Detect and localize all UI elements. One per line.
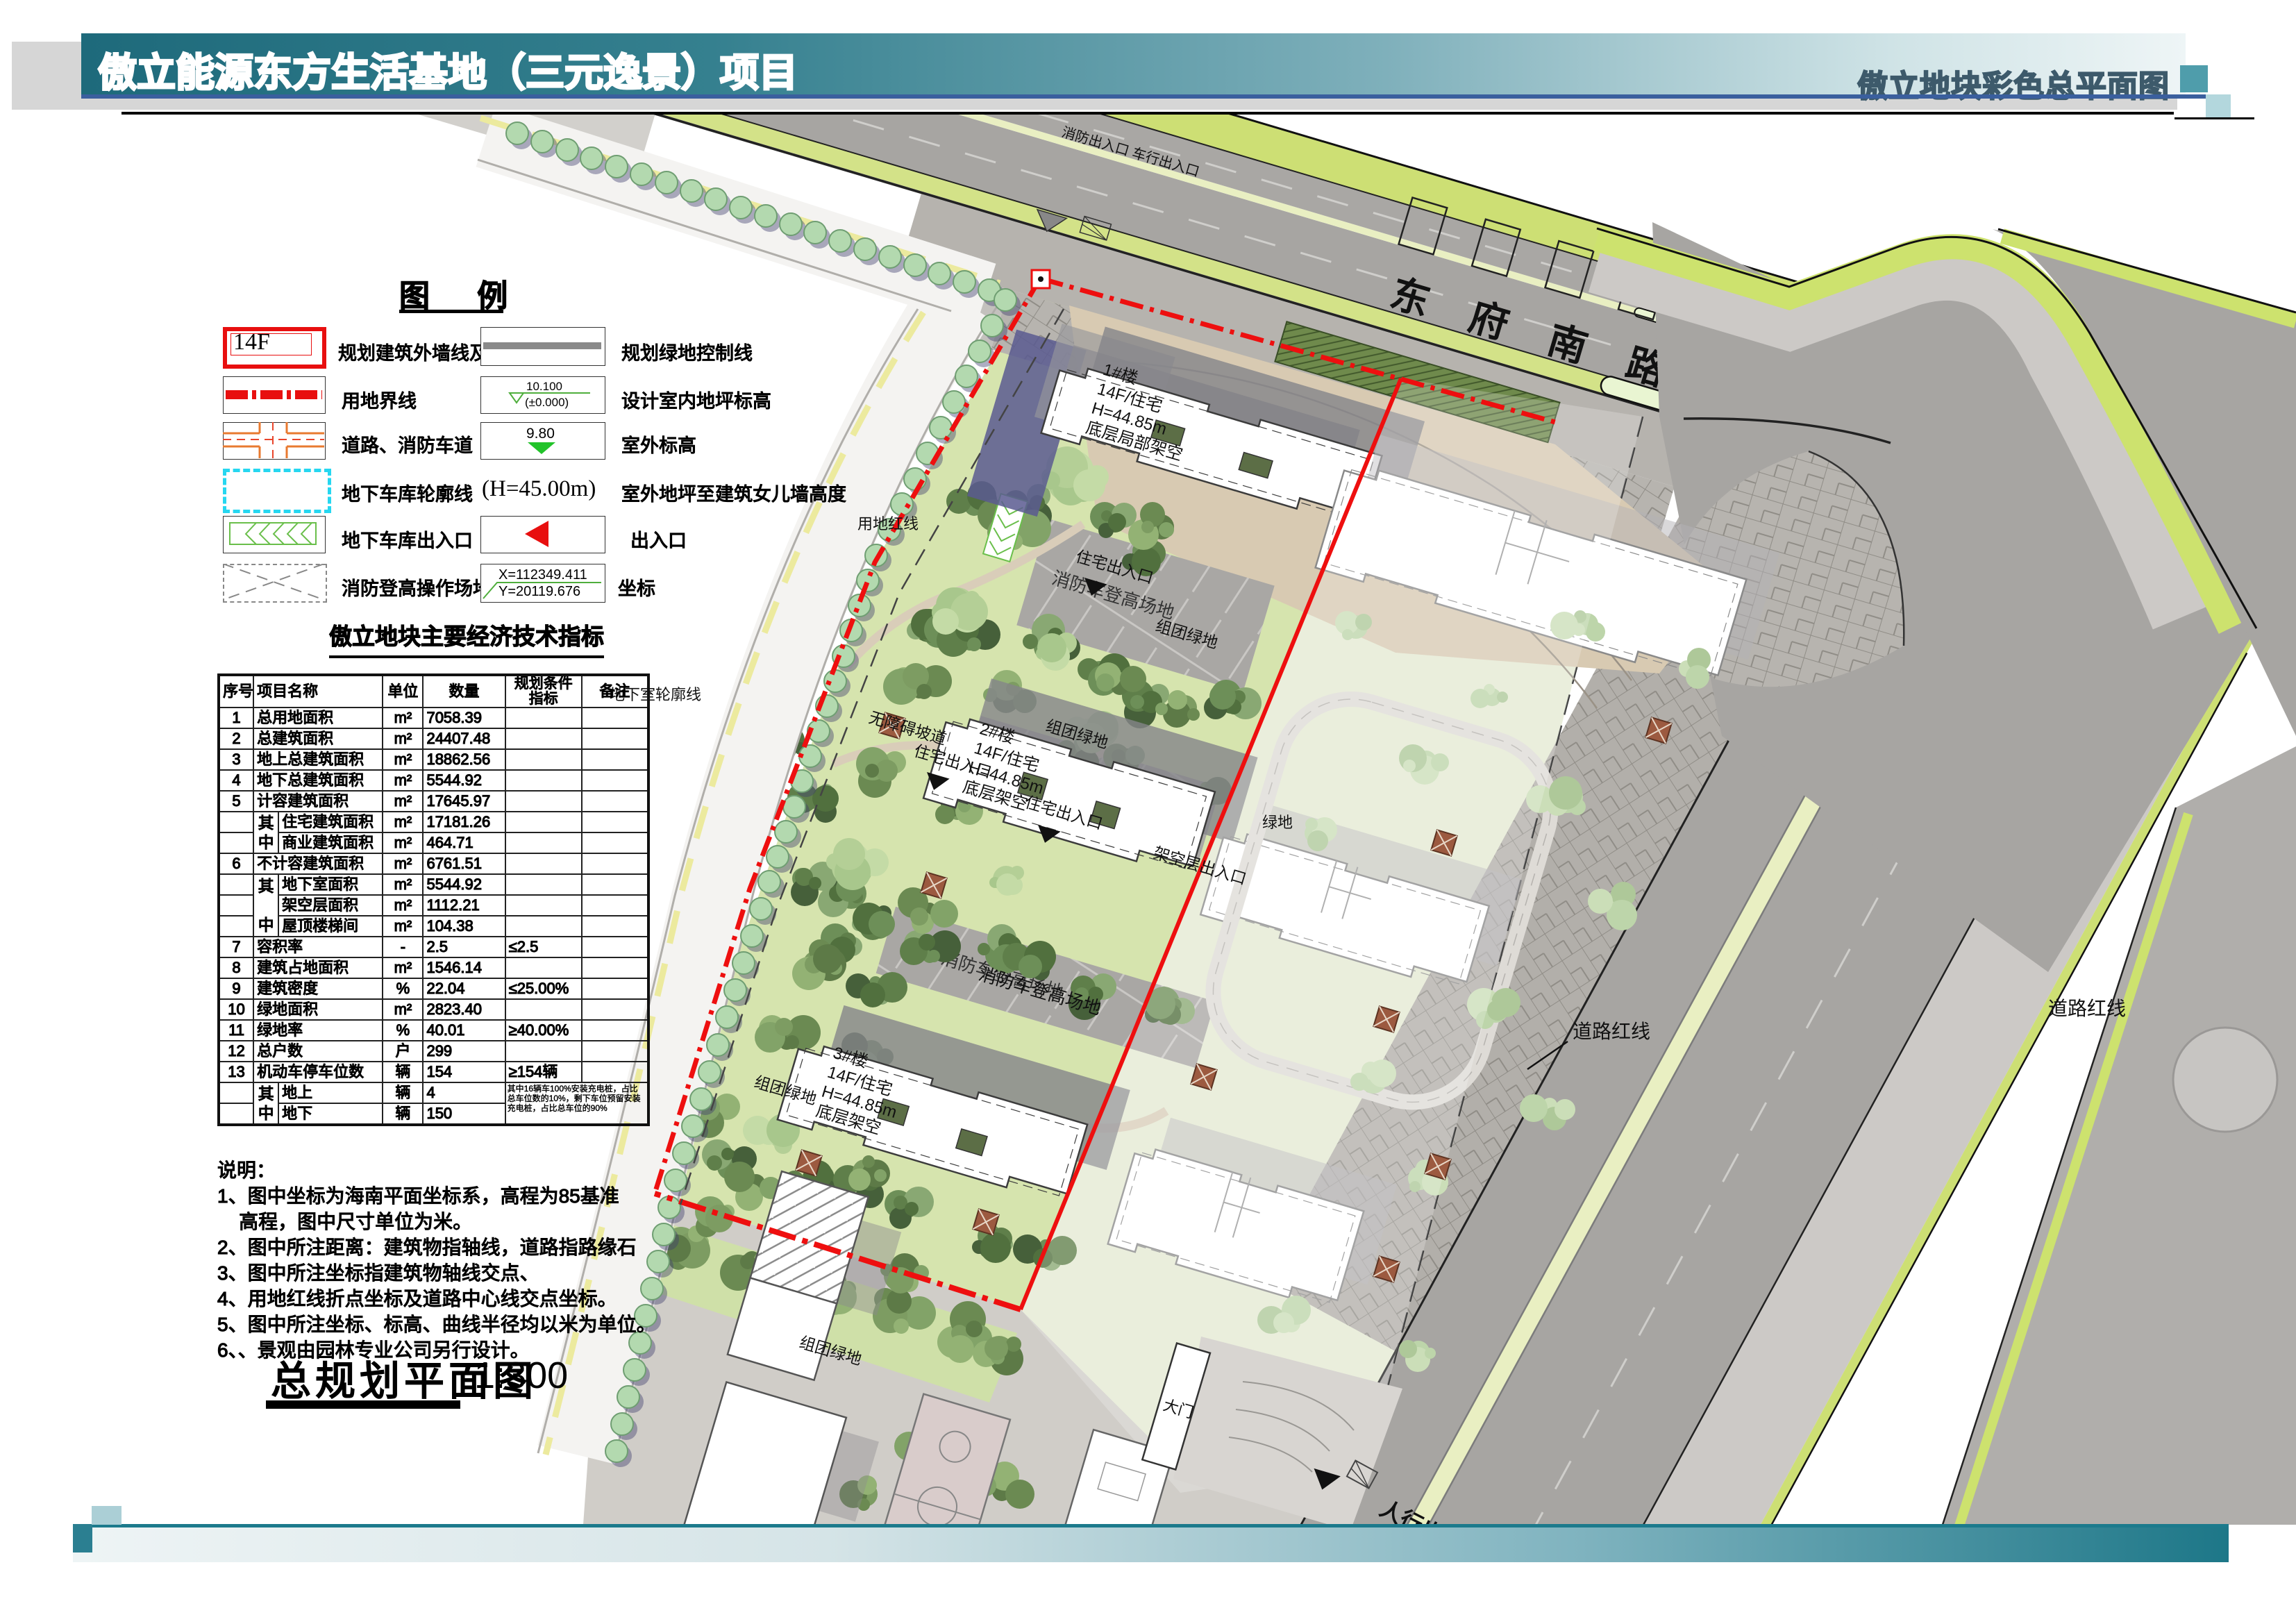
svg-text:9.80: 9.80 xyxy=(526,426,555,442)
svg-text:10.100: 10.100 xyxy=(526,380,562,393)
svg-text:道路红线: 道路红线 xyxy=(2048,998,2126,1019)
svg-text:Y=20119.676: Y=20119.676 xyxy=(498,584,580,599)
svg-text:X=112349.411: X=112349.411 xyxy=(498,567,587,583)
svg-text:(±0.000): (±0.000) xyxy=(525,396,569,409)
svg-text:绿地: 绿地 xyxy=(1262,814,1293,831)
svg-text:道路红线: 道路红线 xyxy=(1573,1021,1650,1042)
svg-text:用地红线: 用地红线 xyxy=(857,515,919,533)
